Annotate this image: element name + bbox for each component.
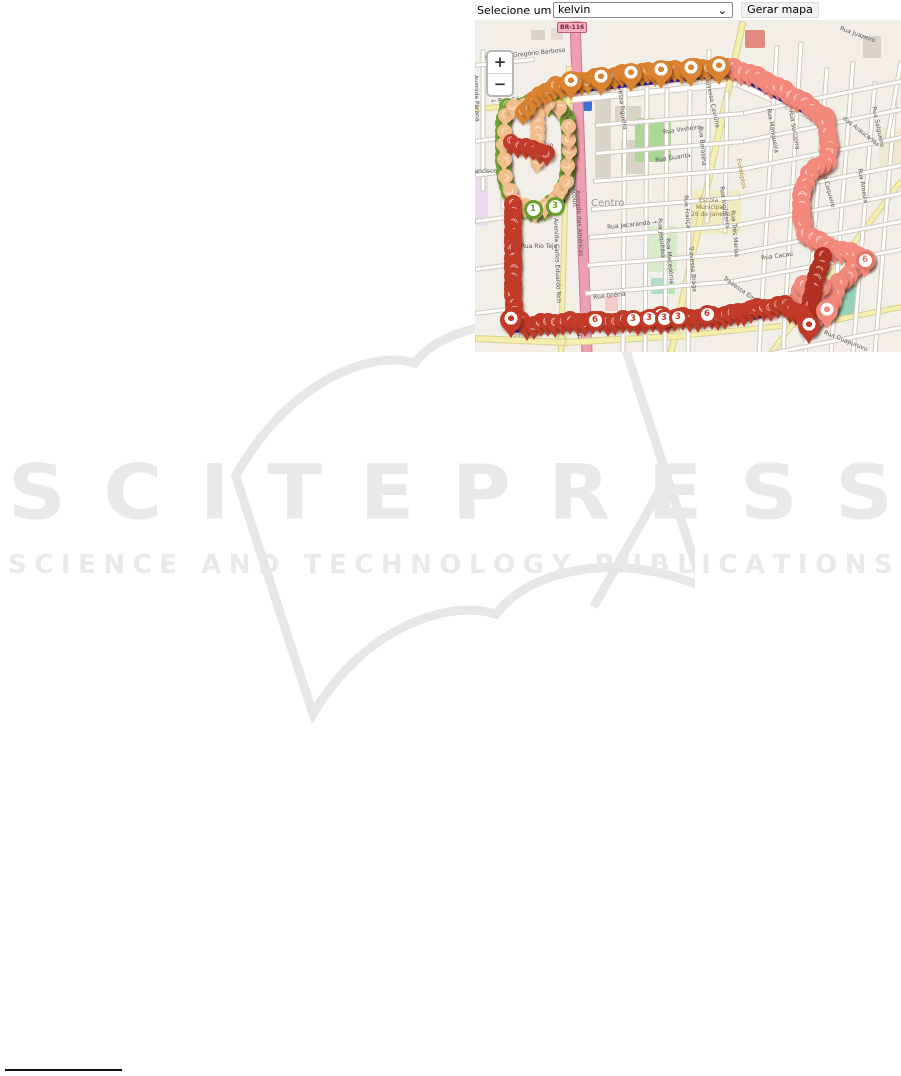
route-pin-marker[interactable]	[816, 300, 838, 322]
street-label: Avenida Paraná	[475, 75, 480, 122]
route-pin-marker[interactable]	[680, 58, 702, 80]
street-label: Rua Juazeiro	[839, 26, 876, 44]
br-116-road-shield: BR-116	[557, 22, 587, 33]
route-count-badge[interactable]: 1	[527, 203, 540, 216]
scitepress-watermark-subtitle: SCIENCE AND TECHNOLOGY PUBLICATIONS	[8, 550, 893, 580]
street-label: Centro	[591, 199, 624, 209]
generate-map-button[interactable]: Gerar mapa	[741, 2, 819, 18]
route-count-badge[interactable]: 6	[589, 314, 602, 327]
route-pin-marker[interactable]	[560, 71, 582, 93]
zoom-out-button[interactable]: −	[488, 73, 512, 95]
route-marker[interactable]: ☾	[561, 119, 576, 134]
street-label: Eucaliptos	[735, 158, 746, 189]
route-pin-marker[interactable]	[620, 63, 642, 85]
route-pin-marker[interactable]	[650, 60, 672, 82]
route-count-badge[interactable]: 6	[701, 308, 714, 321]
user-select-value: kelvin	[558, 3, 590, 16]
route-count-badge[interactable]: 3	[672, 311, 685, 324]
route-count-badge[interactable]: 6	[859, 254, 872, 267]
route-pin-marker[interactable]	[708, 56, 730, 78]
street-label: Avenida Carlos Eduardo Nch	[552, 218, 561, 303]
map-area	[531, 30, 545, 40]
footnote-rule	[5, 1069, 122, 1071]
street-label: 26 de Janeiro	[691, 212, 731, 218]
route-count-badge[interactable]: 3	[549, 200, 562, 213]
route-pin-marker[interactable]	[798, 315, 820, 337]
map-zoom-control: + −	[486, 50, 514, 97]
route-count-badge[interactable]: 3	[658, 312, 671, 325]
scitepress-watermark-title: SCITEPRESS	[8, 448, 893, 536]
user-select-dropdown[interactable]: kelvin ⌄	[553, 2, 733, 18]
route-pin-marker[interactable]	[500, 309, 522, 331]
route-marker[interactable]: ☾	[539, 145, 555, 161]
route-count-badge[interactable]: 3	[627, 313, 640, 326]
street-label: Rua Rio Tejo	[521, 244, 557, 250]
chevron-down-icon: ⌄	[718, 4, 727, 18]
route-count-badge[interactable]: 3	[643, 312, 656, 325]
zoom-in-button[interactable]: +	[488, 52, 512, 73]
map-area	[595, 90, 611, 178]
route-pin-marker[interactable]	[590, 67, 612, 89]
street-label: Rua Mangueira	[765, 108, 779, 153]
map-area	[745, 30, 765, 48]
route-map[interactable]: BR-116 + − Rua João Gregório BarbosaAven…	[475, 20, 901, 352]
open-book-watermark	[225, 288, 695, 728]
